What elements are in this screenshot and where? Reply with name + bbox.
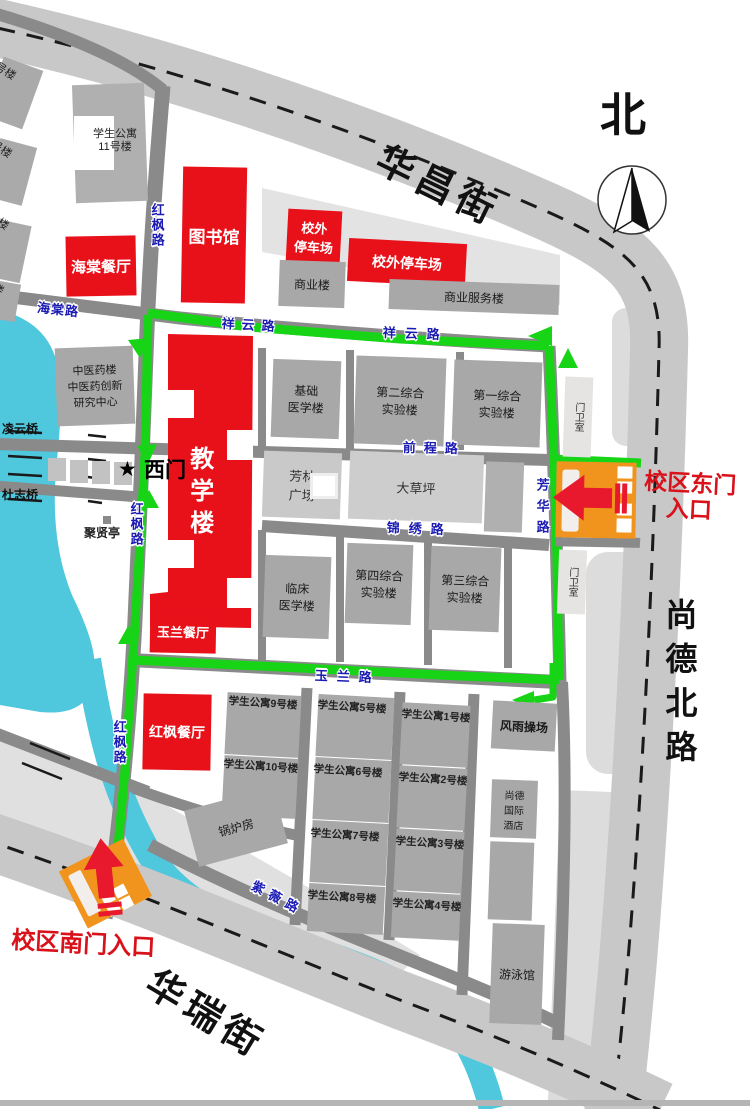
west-plot-3 (92, 461, 110, 484)
exp4-label: 第四综合 实验楼 (354, 566, 403, 602)
north-label: 北 (600, 88, 646, 143)
zhongyiyao-label: 中医药楼 中医药创新 研究中心 (67, 361, 124, 411)
building-hotel: 尚德 国际 酒店 (490, 779, 538, 839)
shangye-label: 商业楼 (294, 275, 331, 293)
youyongguan-label: 游泳馆 (499, 965, 536, 983)
fengyu-label: 风雨操场 (500, 716, 549, 735)
building-jichu: 基础 医学楼 (271, 359, 342, 439)
hongfeng-restaurant-label: 红枫餐厅 (149, 722, 205, 743)
dacaoping-label: 大草坪 (396, 477, 436, 497)
road-xiangyun-label-1: 祥云路 (221, 316, 282, 335)
menweishi-upper-label: 门卫室 (570, 402, 586, 433)
building-exp3: 第三综合 实验楼 (429, 546, 502, 632)
guolufang-label: 锅炉房 (216, 814, 255, 840)
pavilion-icon (103, 516, 111, 524)
jichu-label: 基础 医学楼 (287, 381, 324, 416)
compass-icon (598, 166, 666, 234)
building-small-block (489, 885, 530, 908)
road-hongfeng-label-3: 红枫路 (111, 720, 127, 765)
road-hongfeng-label-1: 红枫路 (149, 203, 165, 248)
east-gate-entrance-label: 校区东门 入口 (627, 468, 750, 526)
building-youyongguan: 游泳馆 (489, 923, 544, 1025)
road-hongfeng-label-2: 红枫路 (128, 502, 144, 547)
building-shangye: 商业楼 (278, 260, 346, 308)
road-qiancheng-label: 前程路 (403, 440, 466, 457)
road-fanghua-label: 芳华路 (534, 478, 550, 541)
bridge-duzhi-label: 杜志桥 (2, 488, 38, 502)
juxianting-label: 聚贤亭 (84, 526, 120, 540)
haitang-restaurant-label: 海棠餐厅 (71, 255, 131, 277)
library-label: 图书馆 (188, 222, 239, 248)
road-jinxiu-label: 锦绣路 (386, 520, 453, 538)
campus-map: 海棠餐厅 图书馆 校外 停车场 校外停车场 玉兰餐厅 红枫餐厅 商业楼 商业服务… (0, 0, 750, 1109)
exp1-label: 第一综合 实验楼 (472, 386, 521, 422)
building-fengyu: 风雨操场 (491, 700, 557, 751)
building-hotel-annex (488, 841, 535, 920)
building-library: 图书馆 (181, 166, 247, 303)
guard-booth-upper: 门卫室 (563, 377, 594, 458)
jiaoxuelou-label: 教学楼 (184, 446, 213, 542)
building-linchuang: 临床 医学楼 (263, 555, 332, 639)
building-hongfeng-restaurant: 红枫餐厅 (142, 693, 211, 770)
building-exp2: 第二综合 实验楼 (353, 355, 446, 446)
bridge-lingyun-label: 凌云桥 (2, 422, 38, 436)
parking-small-label: 校外 停车场 (294, 217, 335, 257)
building-exp1: 第一综合 实验楼 (452, 359, 543, 447)
building-parking-small: 校外 停车场 (286, 209, 343, 265)
road-yulan-label: 玉兰路 (314, 668, 381, 686)
west-plot-1 (48, 458, 66, 481)
building-shangye-fuwu: 商业服务楼 (389, 279, 560, 315)
west-plot-2 (70, 460, 88, 483)
street-shangde-label: 尚德北路 (660, 598, 698, 774)
parking-wide-label: 校外停车场 (372, 251, 443, 275)
guard-booth-lower: 门卫室 (557, 550, 587, 615)
building-haitang-restaurant: 海棠餐厅 (65, 235, 136, 296)
building-exp4: 第四综合 实验楼 (345, 543, 414, 625)
building-yulan-restaurant: 玉兰餐厅 (150, 609, 217, 653)
big-lawn: 大草坪 (348, 451, 484, 524)
hotel-label: 尚德 国际 酒店 (503, 786, 525, 832)
building-zhongyiyao: 中医药楼 中医药创新 研究中心 (55, 346, 136, 427)
linchuang-label: 临床 医学楼 (278, 579, 315, 614)
road-xiangyun-label-2: 祥云路 (382, 325, 449, 343)
lawn-side-building (484, 461, 524, 532)
west-gate-label: 西门 (144, 458, 186, 483)
bottom-edge-line (0, 1100, 750, 1106)
apt11-label: 学生公寓 11号楼 (86, 128, 144, 154)
menweishi-lower-label: 门卫室 (564, 567, 580, 598)
yulan-restaurant-label: 玉兰餐厅 (157, 622, 209, 642)
shangye-fuwu-label: 商业服务楼 (444, 287, 505, 306)
exp3-label: 第三综合 实验楼 (440, 571, 489, 607)
west-gate-star-icon: ★ (118, 457, 137, 482)
east-gate (552, 461, 636, 547)
plaza-monument (310, 473, 338, 499)
exp2-label: 第二综合 实验楼 (375, 383, 424, 419)
